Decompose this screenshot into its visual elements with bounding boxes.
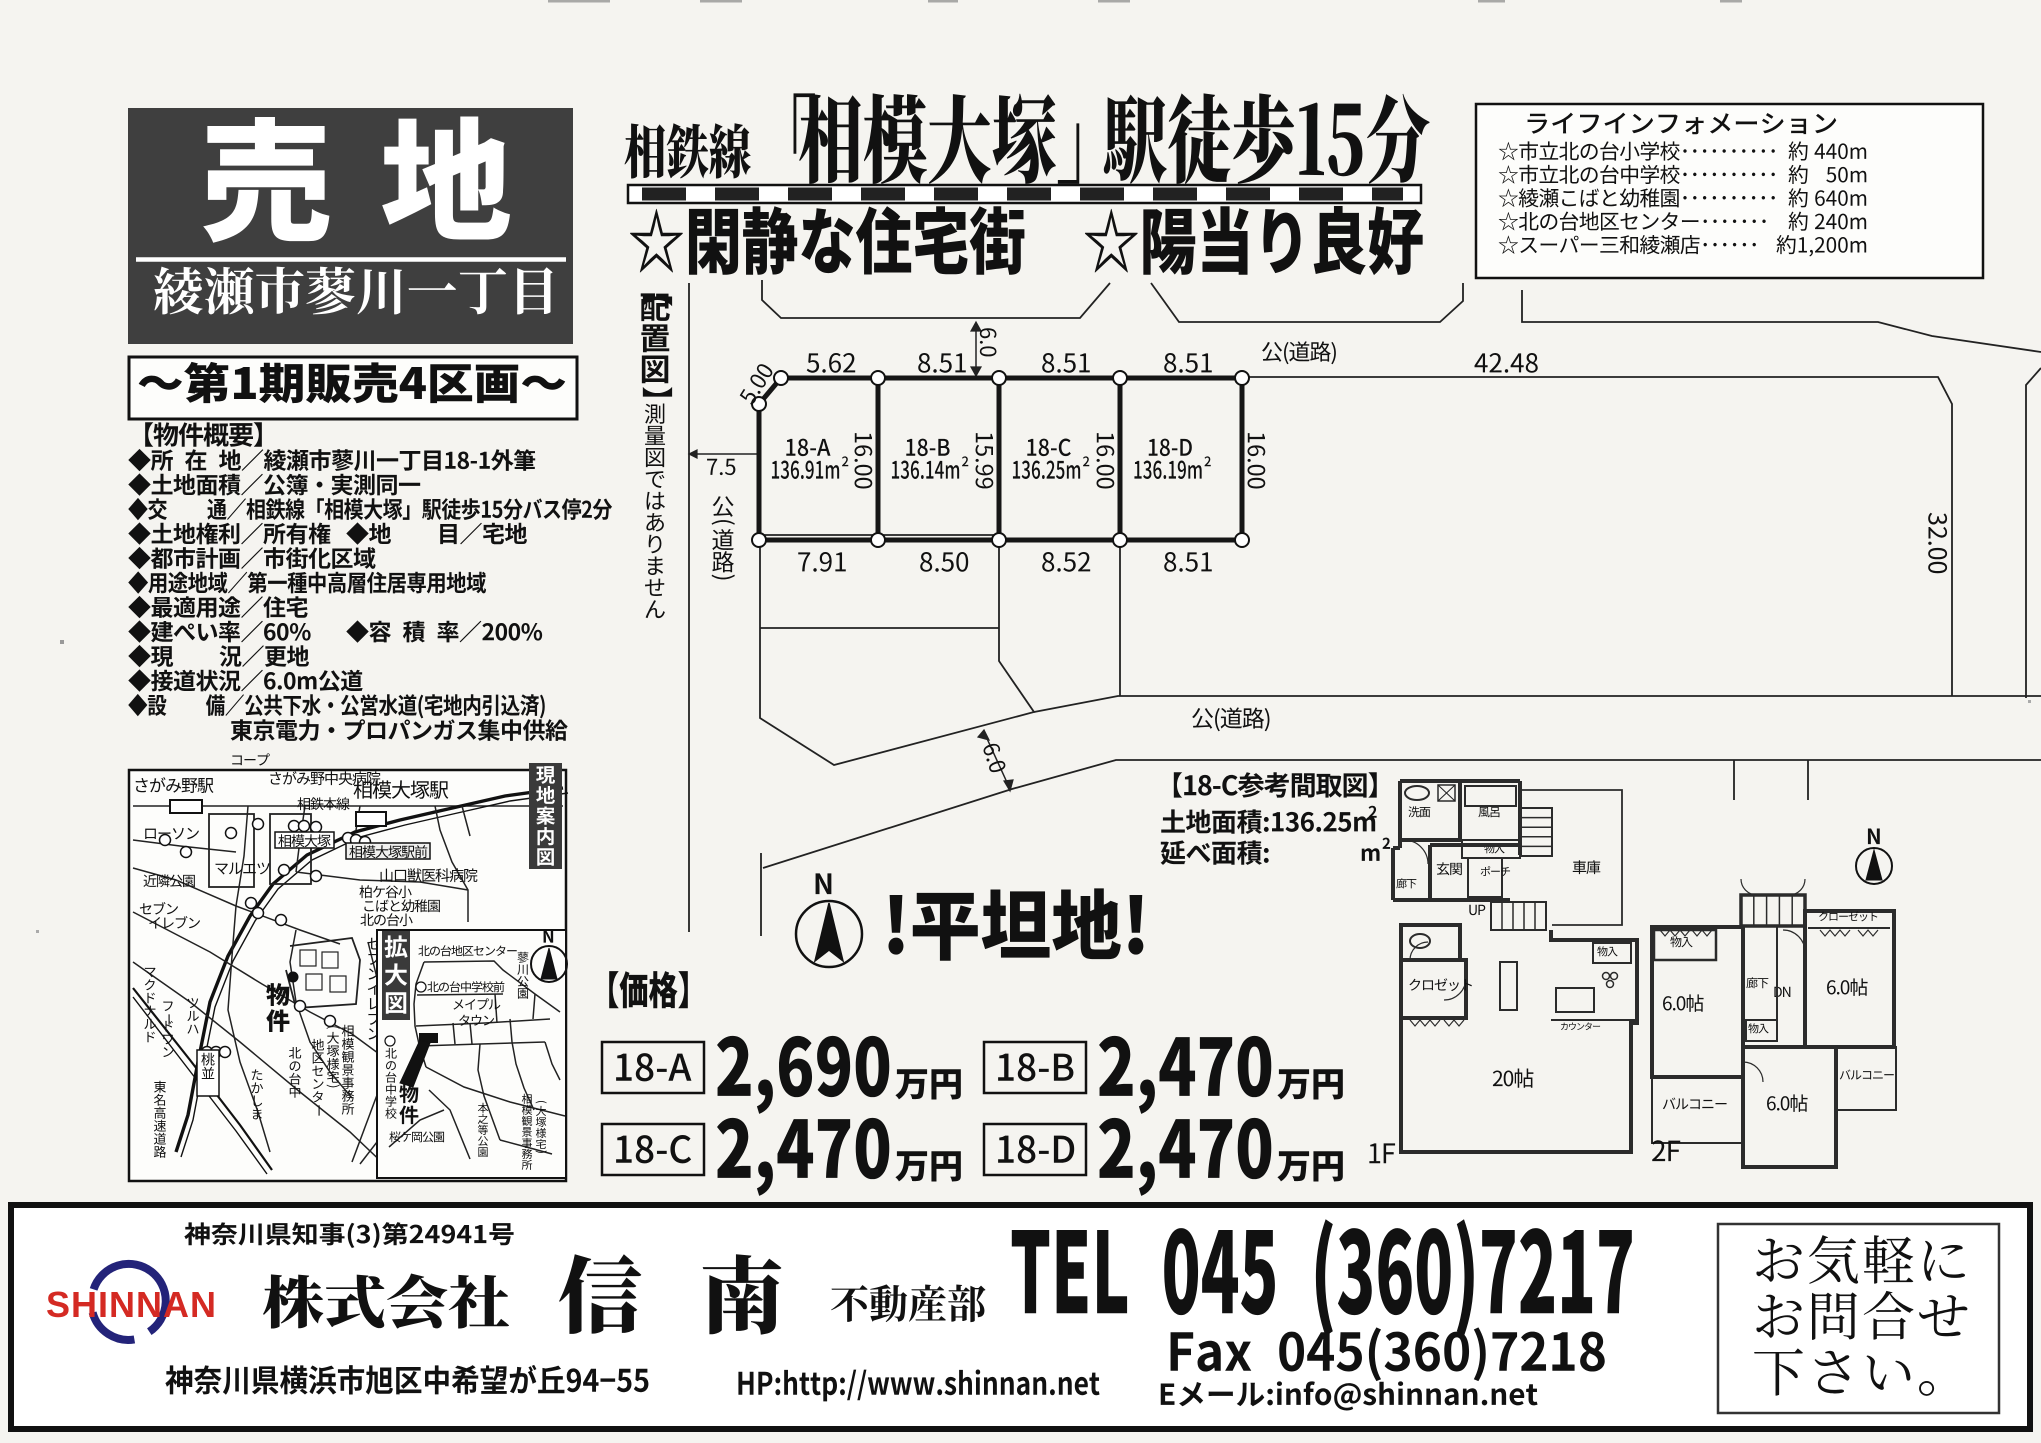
svg-text:SHINNAN: SHINNAN [46,1284,217,1325]
